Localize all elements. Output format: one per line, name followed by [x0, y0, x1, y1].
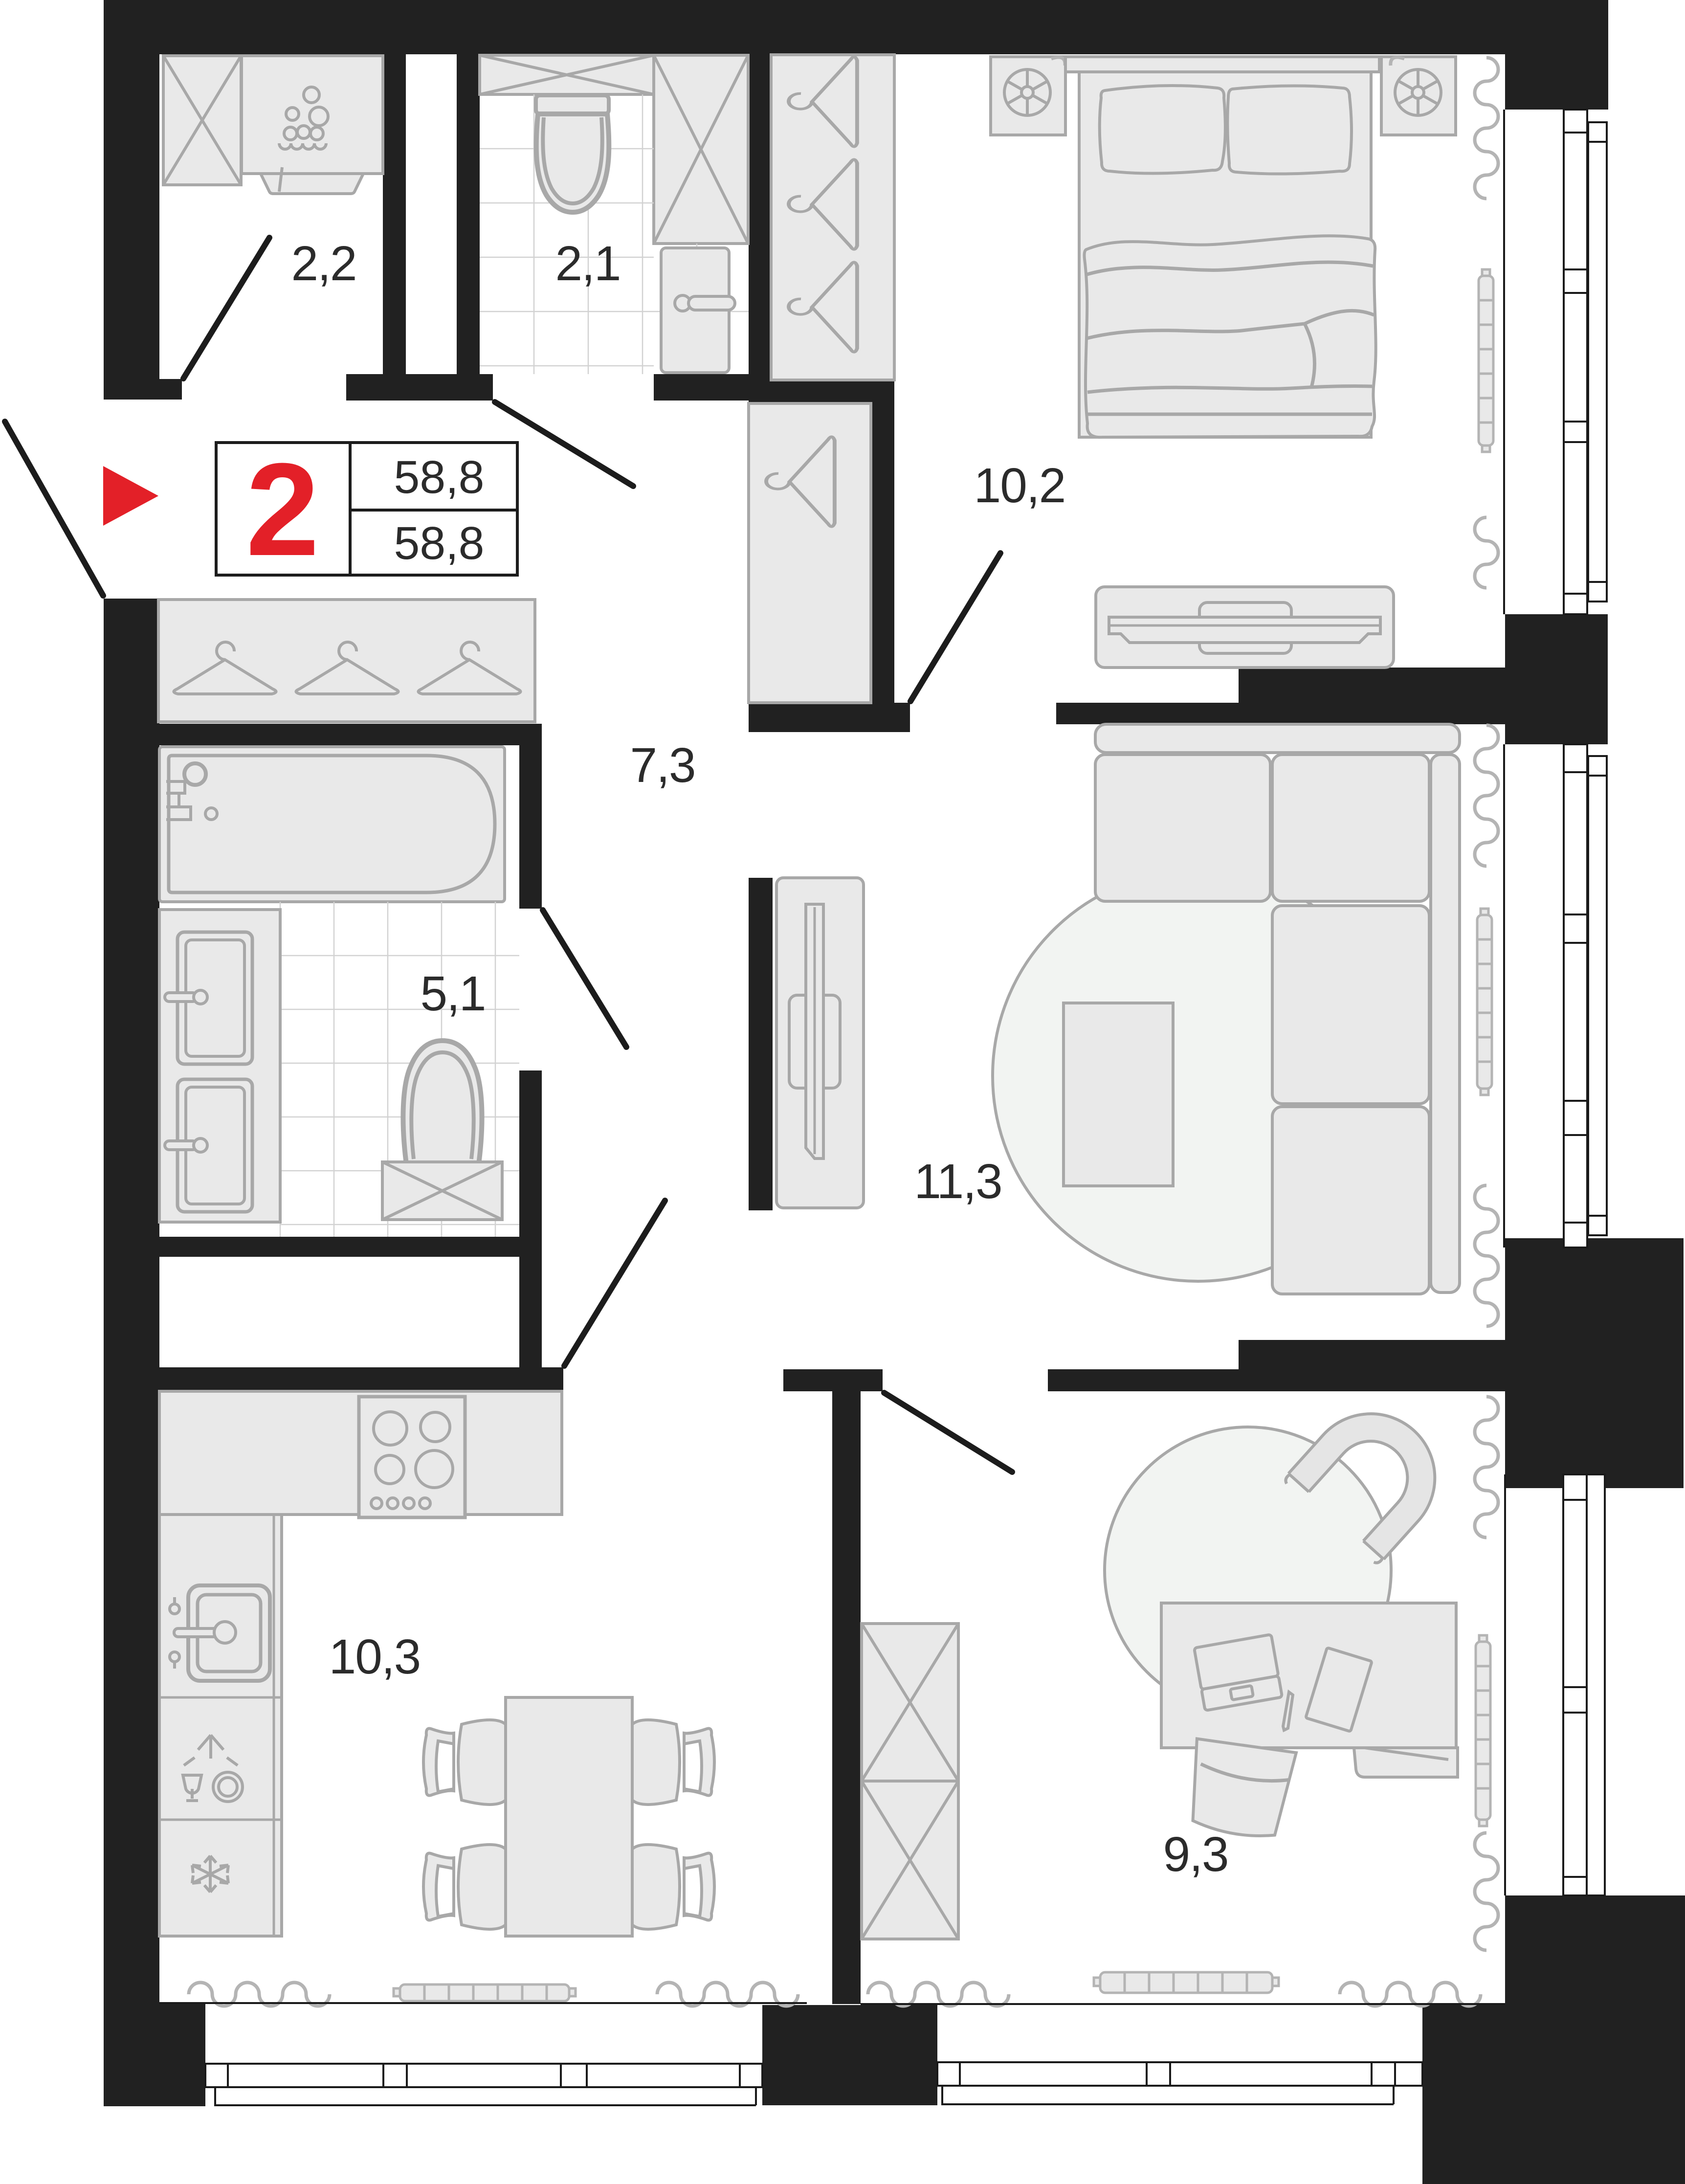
svg-text:5,1: 5,1 — [420, 966, 485, 1021]
svg-text:2,1: 2,1 — [555, 236, 620, 291]
svg-text:58,8: 58,8 — [394, 451, 485, 503]
svg-text:11,3: 11,3 — [914, 1154, 1001, 1209]
svg-text:7,3: 7,3 — [630, 738, 695, 793]
svg-text:2,2: 2,2 — [291, 236, 356, 291]
svg-text:10,2: 10,2 — [974, 458, 1065, 513]
svg-text:9,3: 9,3 — [1163, 1827, 1228, 1882]
svg-text:2: 2 — [246, 436, 319, 583]
svg-text:10,3: 10,3 — [329, 1629, 421, 1684]
svg-text:58,8: 58,8 — [394, 517, 485, 569]
